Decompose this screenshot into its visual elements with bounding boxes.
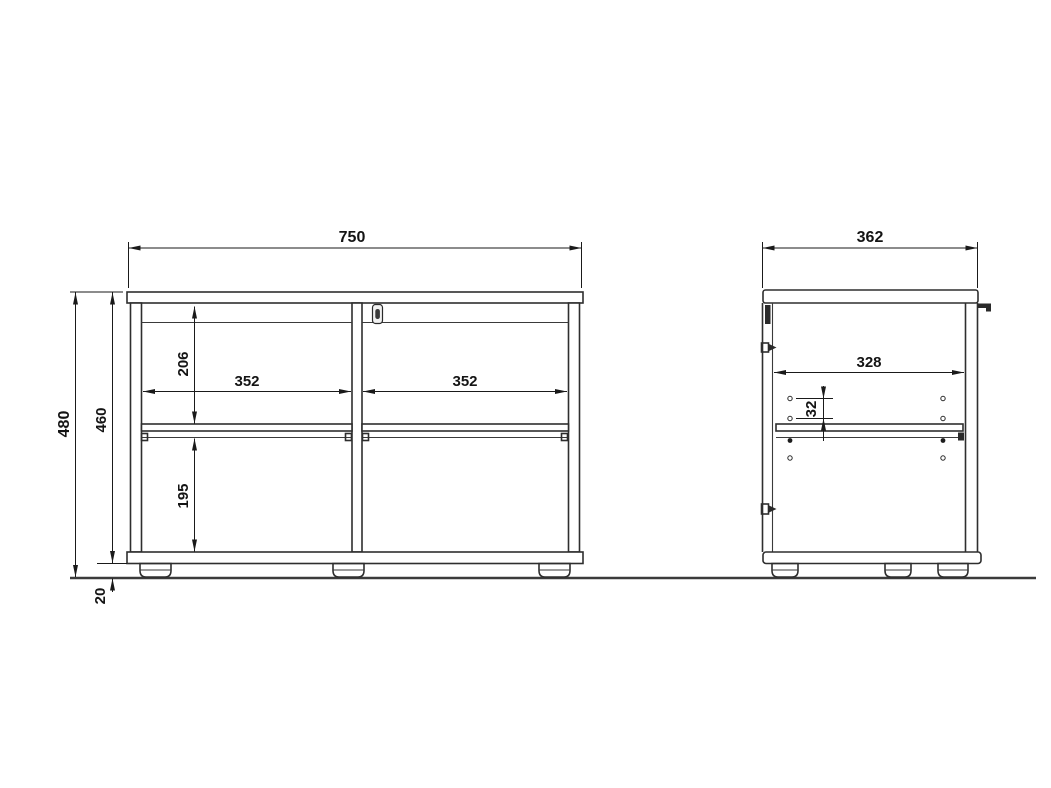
shelf-pin-hole xyxy=(941,456,945,460)
shelf-pin xyxy=(941,438,946,443)
front-base-panel xyxy=(127,552,583,564)
shelf-pin-hole xyxy=(788,416,792,420)
side-back-edge-mark xyxy=(765,305,771,324)
front-shelf-right xyxy=(362,424,569,431)
hinge-fitting-mark xyxy=(762,343,777,352)
front-shelf-left xyxy=(142,424,353,431)
dim-side-depth: 362 xyxy=(763,229,978,288)
dim-front-width: 750 xyxy=(129,229,582,288)
side-top-panel xyxy=(763,290,978,303)
shelf-pin-hole xyxy=(788,396,792,400)
shelf-pin-hole xyxy=(941,396,945,400)
side-top-edge-hook xyxy=(978,304,991,312)
dim-upper-opening-height-label: 206 xyxy=(175,351,192,376)
shelf-pin-hole xyxy=(788,456,792,460)
drawing-svg: 750 480 460 20 206 195 352 352 362 xyxy=(0,0,1051,788)
dim-hole-spacing: 32 xyxy=(796,386,833,441)
front-center-divider xyxy=(352,303,362,552)
dim-side-depth-label: 362 xyxy=(857,229,884,246)
front-top-panel xyxy=(127,292,583,303)
lock-fitting-core xyxy=(375,309,380,319)
side-shelf-end-mark xyxy=(958,433,964,441)
dim-front-width-label: 750 xyxy=(339,229,366,246)
front-right-side-panel xyxy=(569,303,580,552)
dim-hole-spacing-label: 32 xyxy=(803,401,820,418)
dim-plinth-height: 20 xyxy=(92,579,113,605)
shelf-pin xyxy=(788,438,793,443)
dim-right-opening-width-label: 352 xyxy=(452,373,477,390)
side-view-cabinet xyxy=(762,290,992,577)
shelf-pin-hole xyxy=(941,416,945,420)
dim-plinth-height-label: 20 xyxy=(92,588,109,605)
side-shelf xyxy=(776,424,963,431)
dim-total-height-label: 480 xyxy=(56,411,73,438)
hinge-fitting-mark xyxy=(762,504,777,514)
dim-lower-opening-height-label: 195 xyxy=(175,483,192,508)
dim-body-height-label: 460 xyxy=(93,407,110,432)
dim-right-opening-width: 352 xyxy=(363,373,567,392)
dim-left-opening-width-label: 352 xyxy=(234,373,259,390)
dim-interior-depth: 328 xyxy=(774,354,964,373)
dim-interior-depth-label: 328 xyxy=(856,354,881,371)
dim-lower-opening-height: 195 xyxy=(175,439,195,552)
technical-drawing-cabinet: 750 480 460 20 206 195 352 352 362 xyxy=(0,0,1051,788)
dim-body-height: 460 xyxy=(93,293,127,564)
front-left-side-panel xyxy=(131,303,142,552)
dim-upper-opening-height: 206 xyxy=(175,307,195,424)
side-base-panel xyxy=(763,552,981,564)
front-view-cabinet xyxy=(127,292,583,577)
